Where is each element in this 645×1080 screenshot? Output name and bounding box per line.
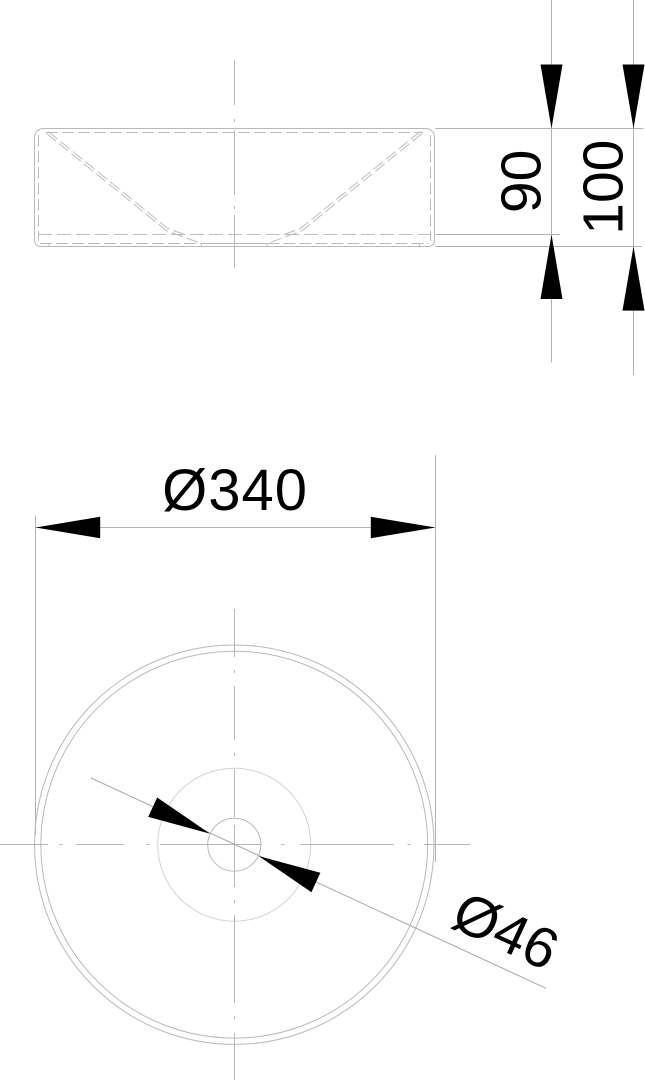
svg-text:100: 100 <box>571 140 635 235</box>
svg-text:Ø340: Ø340 <box>162 458 308 523</box>
svg-text:90: 90 <box>490 150 554 213</box>
